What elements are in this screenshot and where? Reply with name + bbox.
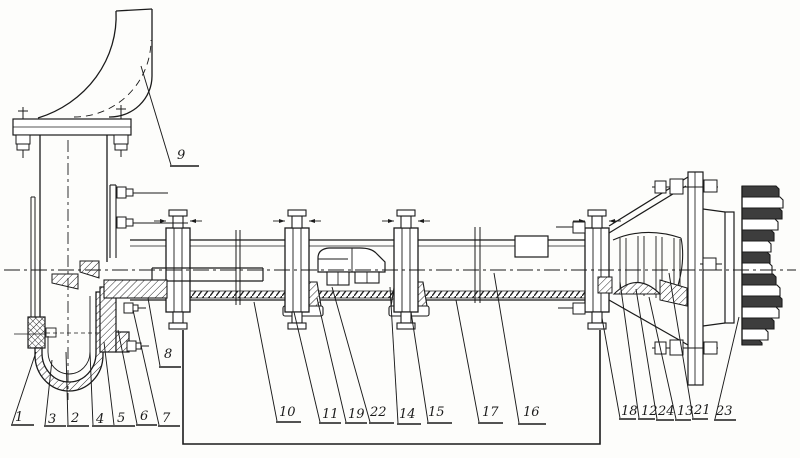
callout-17: 17 [456,300,503,423]
leader-line [294,312,320,422]
callout-13: 13 [649,297,694,420]
flange-coupling [154,210,202,329]
leader-line [411,312,428,422]
coupling-fin [742,296,782,307]
shaft-tube-thread [136,291,587,298]
callout-5: 5 [104,342,135,426]
coupling-fin [742,197,783,208]
leader-line [90,352,93,425]
part-number: 8 [164,347,172,362]
drawing-sheet: 9132456781011192214151716181224132123 [0,0,800,458]
part-number: 16 [523,405,540,420]
callout-15: 15 [411,312,452,423]
leader-line [254,302,277,421]
discharge-head [598,177,688,345]
bowl-seat [80,261,99,278]
coupling-fin [742,219,778,230]
nameplate-boss [515,236,548,257]
coupling-fin [742,340,762,345]
leader-line [456,300,479,422]
leader-line [332,287,370,422]
part-number: 7 [162,411,171,426]
side-plate [110,185,116,258]
part-number: 22 [369,405,387,420]
leader-line [133,310,159,425]
coupling-fin [742,329,768,340]
callout-12: 12 [620,282,658,419]
mounting-flange [652,172,734,385]
part-number: 24 [657,404,675,419]
coupling-fin [742,186,779,197]
pipe-couplings [154,210,621,329]
bowl-bore [48,296,90,374]
leader-line [141,66,171,165]
part-number: 1 [15,410,23,425]
part-number: 2 [70,411,79,426]
leader-line [649,297,676,419]
suction-elbow [38,9,152,118]
part-number: 6 [140,409,148,424]
part-number: 17 [482,405,499,420]
coupling-fin [742,318,774,329]
flange-bolts [652,179,722,355]
drive-hub [725,212,734,323]
leader-line [104,342,114,425]
impeller-key [46,328,56,337]
coupling-fin [742,252,770,263]
part-number: 19 [348,407,365,422]
coupling-fin [742,274,776,285]
pump-bowl [14,135,188,391]
column-adapter [104,280,167,298]
coupling-fin [742,241,771,252]
leader-line [620,282,639,418]
callout-23: 23 [714,317,739,420]
rib-arch [613,232,681,240]
callout-9: 9 [141,66,199,166]
finned-coupling [742,186,783,345]
part-number: 4 [95,412,104,427]
elbow-flange [13,105,131,158]
part-number: 9 [177,148,185,163]
coupling-fin [742,285,780,296]
bowl-seat [52,274,78,289]
part-number: 14 [399,407,416,422]
coupling-fin [742,230,774,241]
part-number: 15 [428,405,445,420]
coupling-fin [742,263,772,274]
callout-1: 1 [11,352,36,425]
leader-line [636,289,657,419]
coupling-fin [742,208,782,219]
gland-packing [598,277,612,293]
part-number: 21 [693,403,711,418]
leader-line [317,298,346,422]
part-number: 5 [117,411,125,426]
part-number: 10 [279,405,296,420]
part-number: 23 [715,404,733,419]
callout-19: 19 [317,298,367,423]
part-number: 11 [322,407,339,422]
leader-line [148,298,160,366]
coupling-fin [742,307,779,318]
leader-line [602,318,620,418]
shaft-stabilizer [318,248,385,272]
assembly-drawing: 9132456781011192214151716181224132123 [0,0,800,458]
section-bracket [183,330,600,444]
part-number: 3 [48,412,56,427]
part-number: 18 [621,404,638,419]
